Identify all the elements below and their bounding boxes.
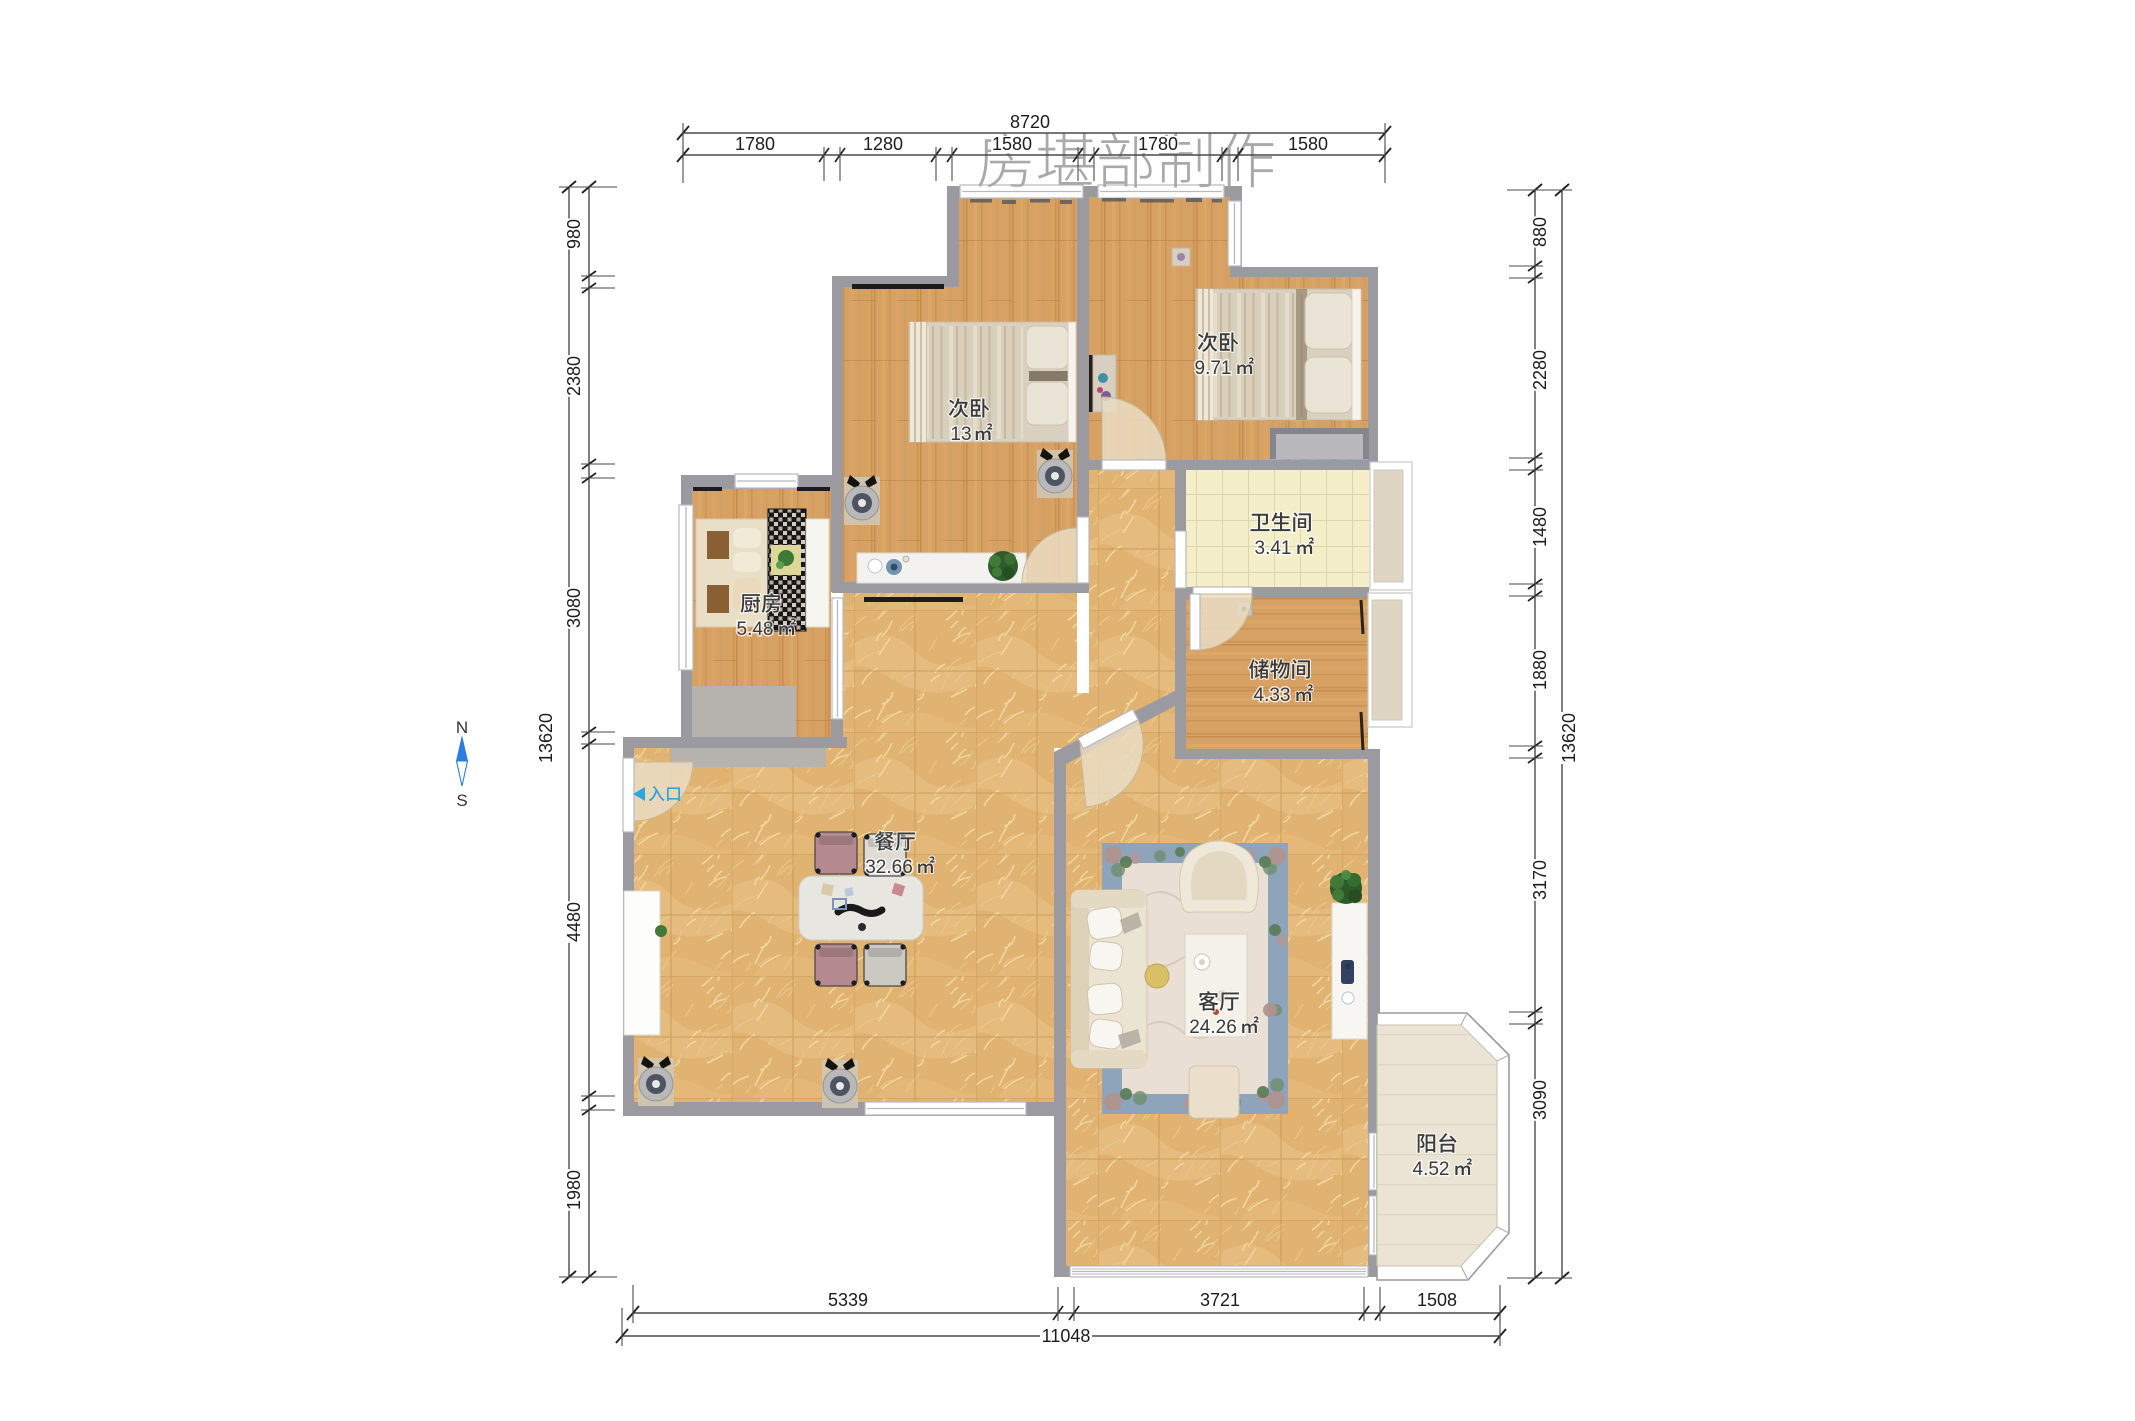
svg-text:13: 13: [950, 424, 971, 445]
svg-text:8720: 8720: [1010, 112, 1050, 132]
svg-text:3170: 3170: [1530, 860, 1550, 900]
svg-text:S: S: [456, 791, 467, 810]
svg-text:13620: 13620: [1559, 713, 1579, 763]
svg-text:2280: 2280: [1530, 350, 1550, 390]
svg-text:3090: 3090: [1530, 1080, 1550, 1120]
svg-text:2380: 2380: [564, 356, 584, 396]
svg-text:9.71: 9.71: [1195, 358, 1232, 379]
svg-text:1280: 1280: [863, 134, 903, 154]
svg-text:3721: 3721: [1200, 1290, 1240, 1310]
svg-text:3.41: 3.41: [1255, 538, 1292, 559]
svg-text:13620: 13620: [536, 713, 556, 763]
svg-text:5339: 5339: [828, 1290, 868, 1310]
svg-text:11048: 11048: [1042, 1326, 1091, 1346]
svg-text:1508: 1508: [1417, 1290, 1457, 1310]
svg-text:1480: 1480: [1530, 507, 1550, 547]
svg-text:4.33: 4.33: [1254, 685, 1291, 706]
svg-text:980: 980: [564, 219, 584, 249]
svg-text:3080: 3080: [564, 588, 584, 628]
svg-text:1880: 1880: [1530, 650, 1550, 690]
svg-text:4.52: 4.52: [1413, 1159, 1450, 1180]
svg-text:880: 880: [1530, 217, 1550, 247]
svg-text:1780: 1780: [1138, 134, 1178, 154]
svg-text:N: N: [456, 718, 468, 737]
svg-text:4480: 4480: [564, 902, 584, 942]
svg-text:1580: 1580: [992, 134, 1032, 154]
svg-text:1780: 1780: [735, 134, 775, 154]
svg-text:1580: 1580: [1288, 134, 1328, 154]
svg-text:32.66: 32.66: [865, 857, 913, 878]
svg-text:24.26: 24.26: [1189, 1017, 1237, 1038]
svg-text:5.48: 5.48: [737, 619, 774, 640]
svg-text:1980: 1980: [564, 1170, 584, 1210]
